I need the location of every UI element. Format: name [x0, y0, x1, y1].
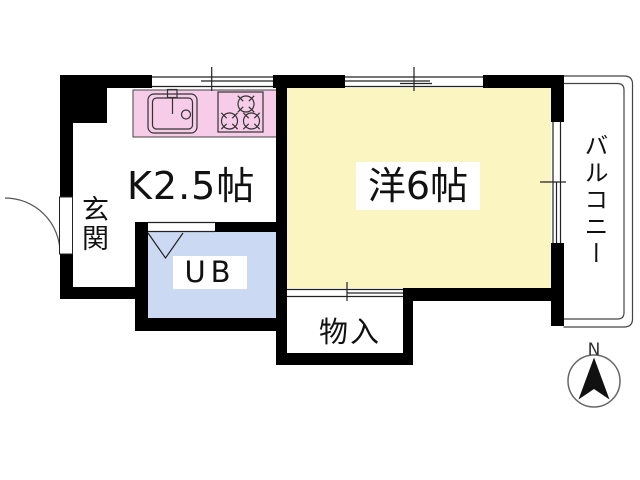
storage-label: 物入 — [301, 309, 399, 351]
kitchen-label: K2.5帖 — [127, 155, 255, 210]
kitchen-window — [152, 67, 273, 91]
western-room-label: 洋6帖 — [356, 162, 480, 210]
balcony-label: バルコニー — [577, 133, 612, 268]
entrance-label: 玄関 — [73, 195, 112, 253]
entrance-door-swing-arc — [5, 198, 60, 253]
entrance-door-leaf — [60, 197, 73, 254]
north-arrow-icon: N — [568, 340, 620, 407]
floorplan-canvas: N K2.5帖 洋6帖 UB 物入 玄関 バルコニー — [0, 0, 640, 480]
room-window — [345, 67, 483, 91]
unit-bath-label: UB — [173, 256, 247, 289]
north-label: N — [588, 340, 601, 360]
